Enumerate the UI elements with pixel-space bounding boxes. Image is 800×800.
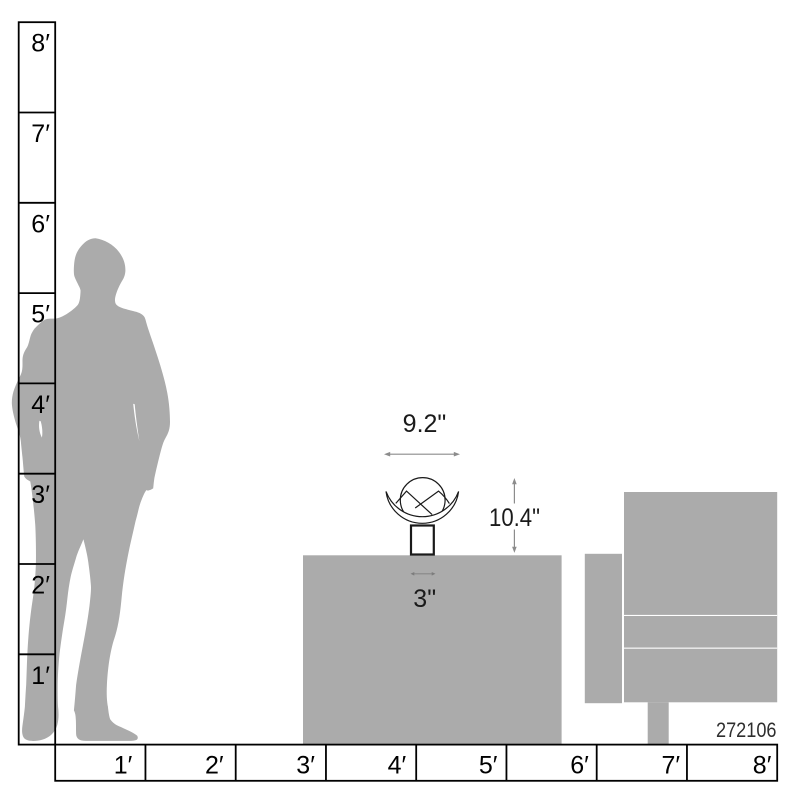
svg-text:1′: 1′ xyxy=(114,752,133,780)
svg-text:5′: 5′ xyxy=(479,752,498,780)
svg-text:1′: 1′ xyxy=(31,662,50,690)
svg-text:7′: 7′ xyxy=(662,752,681,780)
svg-text:8′: 8′ xyxy=(31,30,50,58)
svg-text:4′: 4′ xyxy=(31,391,50,419)
svg-text:6′: 6′ xyxy=(31,210,50,238)
svg-text:3′: 3′ xyxy=(31,481,50,509)
svg-text:2′: 2′ xyxy=(205,752,224,780)
svg-text:6′: 6′ xyxy=(570,752,589,780)
svg-text:2′: 2′ xyxy=(31,572,50,600)
svg-text:7′: 7′ xyxy=(31,120,50,148)
svg-text:9.2": 9.2" xyxy=(403,410,447,438)
svg-text:3′: 3′ xyxy=(296,752,315,780)
svg-text:5′: 5′ xyxy=(31,301,50,329)
svg-text:4′: 4′ xyxy=(388,752,407,780)
svg-text:272106: 272106 xyxy=(716,719,777,742)
svg-text:10.4": 10.4" xyxy=(489,504,540,532)
svg-text:8′: 8′ xyxy=(753,752,772,780)
svg-text:3": 3" xyxy=(413,585,436,613)
